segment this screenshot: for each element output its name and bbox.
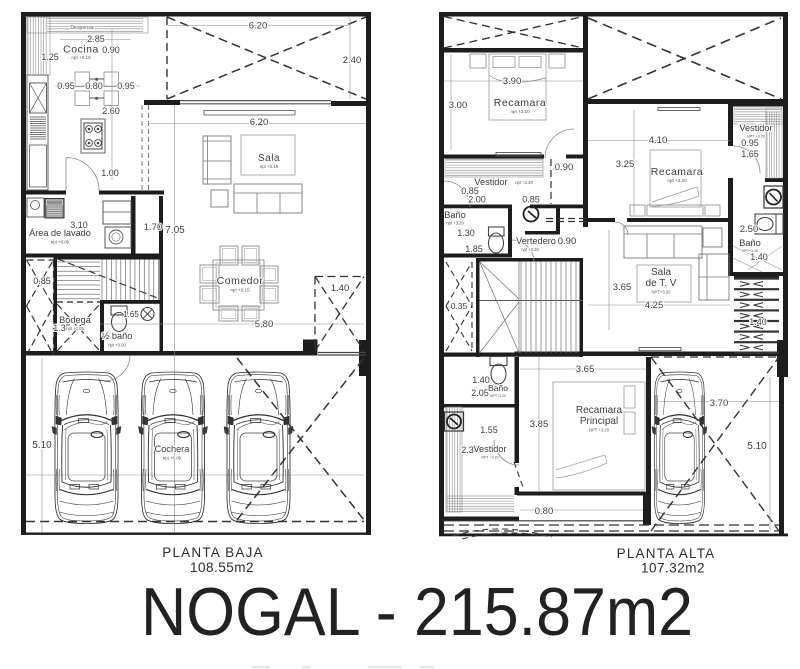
svg-text:4.25: 4.25 xyxy=(645,300,664,311)
svg-text:5.80: 5.80 xyxy=(255,319,274,330)
svg-text:Vertedero: Vertedero xyxy=(516,236,556,246)
svg-text:1.25: 1.25 xyxy=(41,52,59,62)
svg-text:7.05: 7.05 xyxy=(165,225,185,236)
svg-text:Vestidor: Vestidor xyxy=(474,177,507,187)
svg-text:5.10: 5.10 xyxy=(32,440,52,451)
svg-text:Comedor: Comedor xyxy=(217,275,264,287)
svg-text:Vestidor: Vestidor xyxy=(739,123,772,133)
svg-text:3.65: 3.65 xyxy=(613,282,632,293)
svg-text:0.90: 0.90 xyxy=(102,45,120,55)
svg-text:npt +0.00: npt +0.00 xyxy=(108,343,126,348)
svg-text:Recamara: Recamara xyxy=(576,405,623,416)
svg-text:Sala: Sala xyxy=(258,153,280,164)
svg-text:npt +0.00: npt +0.00 xyxy=(51,240,70,245)
svg-text:0.35: 0.35 xyxy=(451,301,468,311)
svg-text:npt +3.20: npt +3.20 xyxy=(510,109,530,114)
svg-text:1.00: 1.00 xyxy=(101,168,119,178)
svg-text:2.60: 2.60 xyxy=(102,106,120,116)
svg-text:Vestidor: Vestidor xyxy=(473,444,506,454)
svg-text:1.40: 1.40 xyxy=(749,317,767,327)
svg-text:PLANTA BAJA: PLANTA BAJA xyxy=(162,545,263,560)
svg-text:npt +3.20: npt +3.20 xyxy=(521,247,539,252)
svg-text:3.00: 3.00 xyxy=(449,100,468,111)
svg-text:Sala: Sala xyxy=(651,267,671,278)
svg-text:3.90: 3.90 xyxy=(503,76,522,87)
svg-text:npt +3.20: npt +3.20 xyxy=(515,180,533,185)
svg-text:de T. V: de T. V xyxy=(646,278,677,289)
svg-text:npt +0.00: npt +0.00 xyxy=(163,456,182,461)
svg-text:5.10: 5.10 xyxy=(747,441,767,452)
svg-text:PLANTA ALTA: PLANTA ALTA xyxy=(617,546,716,561)
svg-text:0.90: 0.90 xyxy=(555,162,574,173)
svg-text:Recamara: Recamara xyxy=(651,166,703,178)
svg-text:0.80: 0.80 xyxy=(535,506,554,517)
svg-text:0.95: 0.95 xyxy=(741,138,759,148)
svg-text:1.70: 1.70 xyxy=(144,222,163,233)
svg-text:0.90: 0.90 xyxy=(558,236,577,247)
svg-text:½ baño: ½ baño xyxy=(102,331,133,341)
svg-text:npt +0.15: npt +0.15 xyxy=(71,55,91,60)
svg-text:4.10: 4.10 xyxy=(649,135,668,146)
svg-text:6.20: 6.20 xyxy=(249,21,268,32)
svg-text:Baño: Baño xyxy=(739,238,760,248)
svg-text:0.85: 0.85 xyxy=(33,276,51,286)
svg-text:NPT+3.20: NPT+3.20 xyxy=(652,290,672,295)
svg-text:2.50: 2.50 xyxy=(740,224,759,235)
svg-text:0.80: 0.80 xyxy=(85,81,103,91)
svg-text:Recamara: Recamara xyxy=(494,97,546,109)
svg-text:108.55m2: 108.55m2 xyxy=(190,560,254,575)
svg-text:Área de lavado: Área de lavado xyxy=(29,228,91,238)
svg-text:1.55: 1.55 xyxy=(480,425,498,435)
svg-text:1.65: 1.65 xyxy=(123,310,139,319)
svg-text:0.95: 0.95 xyxy=(117,81,135,91)
svg-text:NPT+3.20: NPT+3.20 xyxy=(490,394,506,398)
svg-text:Cochera: Cochera xyxy=(155,444,191,454)
svg-text:0.85: 0.85 xyxy=(522,195,540,205)
svg-text:NOGAL - 215.87m2: NOGAL - 215.87m2 xyxy=(141,574,693,650)
svg-text:2.00: 2.00 xyxy=(468,195,486,205)
svg-text:npt +0.15: npt +0.15 xyxy=(260,164,279,169)
svg-text:npt +3.20: npt +3.20 xyxy=(446,221,464,226)
svg-text:1.30: 1.30 xyxy=(457,228,475,238)
svg-text:3.65: 3.65 xyxy=(576,364,595,375)
svg-text:2.85: 2.85 xyxy=(87,34,105,44)
svg-text:2.05: 2.05 xyxy=(471,388,489,398)
svg-text:npt +0.15: npt +0.15 xyxy=(230,288,250,293)
svg-text:Principal: Principal xyxy=(580,416,618,427)
svg-text:1.65: 1.65 xyxy=(741,149,759,159)
svg-text:npt +3.20: npt +3.20 xyxy=(667,178,687,183)
svg-text:Baño: Baño xyxy=(488,383,508,393)
svg-text:npt +0.05: npt +0.05 xyxy=(66,326,84,331)
svg-text:1.40: 1.40 xyxy=(750,252,768,262)
svg-text:Baño: Baño xyxy=(444,210,465,220)
svg-text:3.85: 3.85 xyxy=(530,419,549,430)
svg-text:Despensa: Despensa xyxy=(70,25,93,31)
svg-text:1.85: 1.85 xyxy=(465,244,483,254)
svg-text:6.20: 6.20 xyxy=(250,117,269,128)
svg-text:3.70: 3.70 xyxy=(710,398,729,409)
svg-text:3.25: 3.25 xyxy=(616,159,635,170)
svg-text:Cocina: Cocina xyxy=(63,44,99,56)
svg-text:NPT +3.20: NPT +3.20 xyxy=(481,456,498,460)
svg-text:NPT +3.20: NPT +3.20 xyxy=(589,428,610,433)
svg-text:2.40: 2.40 xyxy=(343,55,362,66)
svg-text:Bodega: Bodega xyxy=(59,315,92,325)
svg-text:0.95: 0.95 xyxy=(57,81,75,91)
svg-text:1.40: 1.40 xyxy=(331,283,350,294)
